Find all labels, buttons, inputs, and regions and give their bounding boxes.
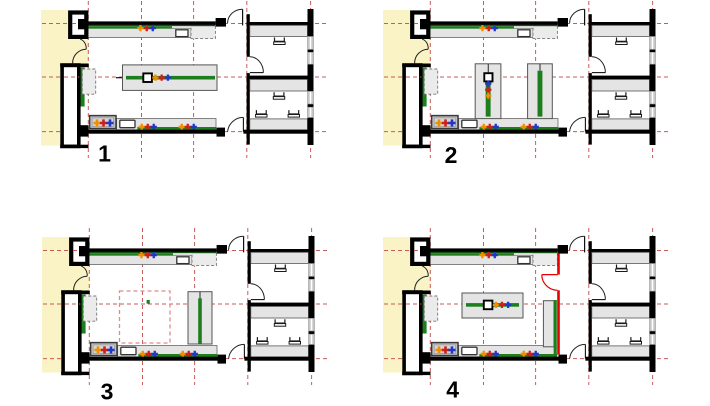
svg-text:1: 1 — [98, 141, 111, 167]
svg-text:4: 4 — [446, 376, 459, 402]
svg-text:3: 3 — [101, 378, 114, 404]
svg-text:2: 2 — [445, 142, 458, 168]
